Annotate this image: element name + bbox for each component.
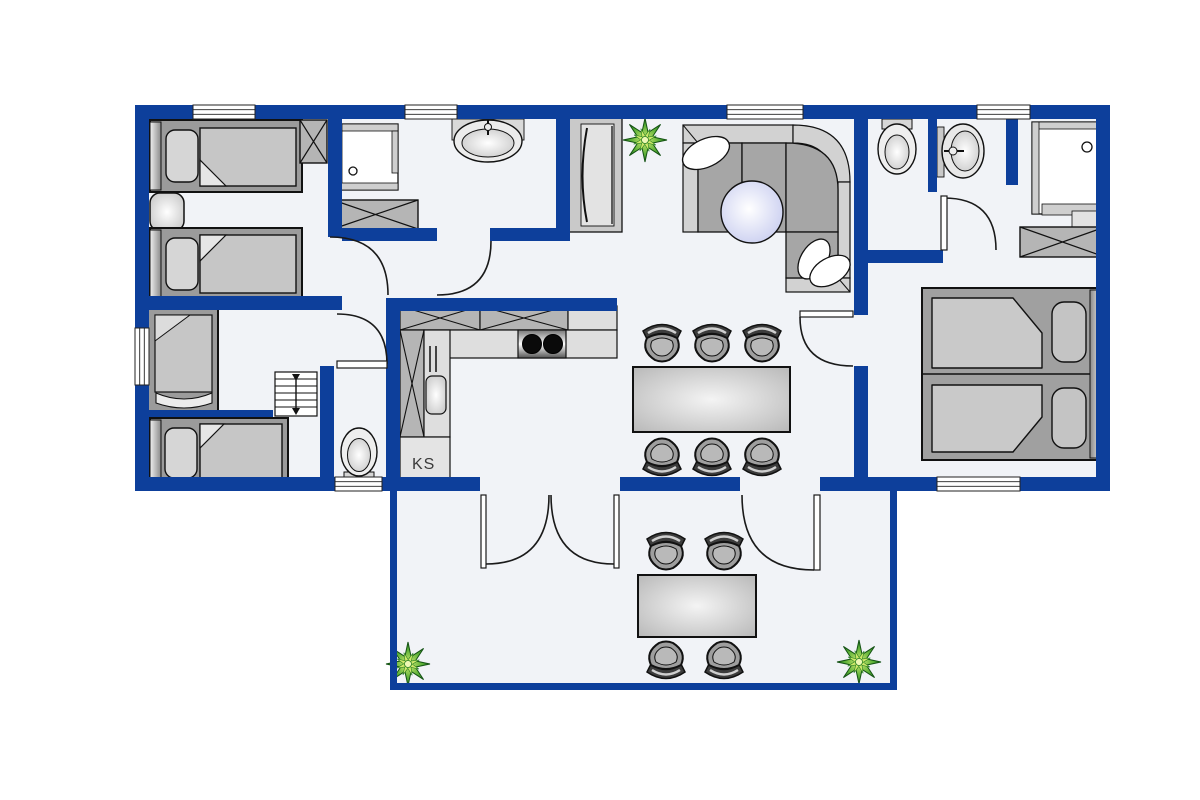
single-bed bbox=[150, 228, 302, 300]
wall-partition bbox=[135, 410, 273, 417]
room-shower-right bbox=[1020, 122, 1105, 257]
terrace-chair bbox=[647, 533, 685, 570]
room-wc-middle bbox=[341, 428, 377, 485]
pillow bbox=[166, 130, 198, 182]
wardrobe bbox=[300, 120, 327, 163]
single-bed bbox=[150, 120, 302, 192]
window bbox=[335, 477, 382, 491]
floor-plan-drawing: KS bbox=[0, 0, 1200, 800]
stairs bbox=[275, 372, 317, 416]
pillow bbox=[1052, 388, 1086, 448]
window bbox=[977, 105, 1030, 119]
window bbox=[405, 105, 457, 119]
pillow bbox=[1052, 302, 1086, 362]
floor-plan-page: KS bbox=[0, 0, 1200, 800]
dining-chair bbox=[743, 325, 781, 362]
washbasin bbox=[452, 119, 524, 162]
wall-interior bbox=[386, 298, 400, 491]
wall-terrace-bottom bbox=[390, 683, 897, 690]
dining-chair bbox=[693, 325, 731, 362]
fridge-label: KS bbox=[412, 456, 435, 473]
terrace-table bbox=[638, 575, 756, 637]
wall-interior bbox=[386, 298, 617, 311]
wall-outer-top bbox=[135, 105, 1110, 119]
window bbox=[727, 105, 803, 119]
dining-table bbox=[633, 367, 790, 432]
dining-chair bbox=[693, 439, 731, 476]
wardrobe bbox=[1020, 227, 1105, 257]
room-wc-top-right bbox=[878, 119, 916, 174]
round-coffee-table bbox=[721, 181, 783, 243]
pillow bbox=[166, 238, 198, 290]
kitchen-sink bbox=[424, 330, 450, 437]
window bbox=[135, 328, 149, 385]
burner-icon bbox=[523, 335, 542, 354]
wall-interior bbox=[854, 119, 868, 315]
stove bbox=[518, 330, 566, 358]
wall-outer-right bbox=[1096, 105, 1110, 491]
tall-cabinet bbox=[400, 330, 424, 437]
wall-interior bbox=[860, 250, 943, 263]
nightstand bbox=[150, 193, 184, 231]
wall-interior bbox=[1006, 119, 1018, 185]
terrace-chair bbox=[705, 533, 743, 570]
wall-interior bbox=[135, 296, 342, 310]
toilet bbox=[878, 119, 916, 174]
wall-interior bbox=[342, 228, 437, 241]
room-bedroom-middle-left bbox=[148, 308, 218, 414]
terrace-chair bbox=[647, 642, 685, 679]
terrace-chair bbox=[705, 642, 743, 679]
wall-interior bbox=[854, 366, 868, 491]
shower bbox=[334, 124, 398, 190]
window bbox=[193, 105, 255, 119]
burner-icon bbox=[544, 335, 563, 354]
drain-icon bbox=[349, 167, 357, 175]
room-washroom-top-right bbox=[937, 124, 984, 178]
sideboard bbox=[567, 118, 622, 232]
wall-interior bbox=[328, 119, 342, 237]
dining-chair bbox=[643, 439, 681, 476]
plant-icon bbox=[623, 118, 667, 162]
drain-icon bbox=[1082, 142, 1092, 152]
toilet bbox=[341, 428, 377, 485]
dining-chair bbox=[743, 439, 781, 476]
dining-chair bbox=[643, 325, 681, 362]
shower-door bbox=[392, 131, 398, 173]
pillow bbox=[165, 428, 197, 478]
wall-terrace-right bbox=[890, 491, 897, 690]
room-bedroom-right bbox=[922, 288, 1105, 460]
double-bed bbox=[922, 288, 1105, 460]
wall-interior bbox=[928, 119, 937, 192]
plant-icon bbox=[837, 640, 881, 684]
washbasin bbox=[937, 124, 984, 178]
wardrobe bbox=[333, 200, 418, 229]
single-bed-vertical bbox=[148, 308, 218, 414]
wall-terrace-left bbox=[390, 491, 397, 690]
wall-interior bbox=[320, 366, 334, 491]
shower bbox=[1032, 122, 1103, 227]
window bbox=[937, 477, 1020, 491]
wall-interior bbox=[556, 119, 570, 241]
dining-area bbox=[633, 325, 790, 476]
